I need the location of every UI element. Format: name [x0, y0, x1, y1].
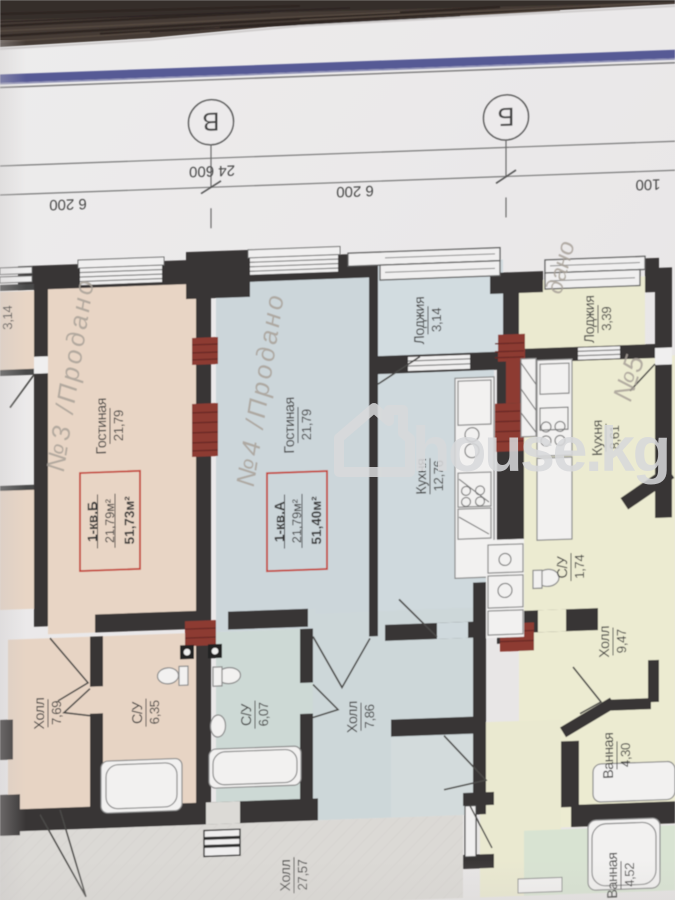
svg-text:6,07: 6,07	[256, 702, 271, 727]
svg-text:С/У: С/У	[555, 555, 571, 579]
svg-text:Гостиная: Гостиная	[94, 398, 110, 455]
svg-text:1,74: 1,74	[572, 554, 587, 579]
svg-text:3,39: 3,39	[599, 306, 614, 331]
svg-text:7,69: 7,69	[49, 701, 64, 726]
svg-text:Ванная: Ванная	[601, 732, 617, 779]
svg-text:9,47: 9,47	[614, 629, 629, 654]
svg-text:6 200: 6 200	[336, 182, 374, 200]
svg-text:С/У: С/У	[130, 700, 146, 724]
svg-text:С/У: С/У	[239, 702, 255, 726]
svg-text:51,40м²: 51,40м²	[309, 495, 324, 544]
svg-text:6,35: 6,35	[147, 700, 162, 725]
svg-text:21,79: 21,79	[299, 409, 314, 441]
svg-text:Б: Б	[497, 102, 514, 133]
svg-text:Холл: Холл	[32, 697, 48, 730]
svg-text:В: В	[202, 106, 219, 137]
svg-text:Холл: Холл	[345, 701, 361, 734]
svg-text:51,73м²: 51,73м²	[122, 495, 137, 544]
svg-text:Холл: Холл	[597, 625, 613, 658]
svg-text:Гостиная: Гостиная	[282, 397, 298, 454]
svg-text:3,14: 3,14	[429, 308, 444, 333]
svg-text:7,86: 7,86	[362, 704, 377, 729]
svg-text:Лоджия: Лоджия	[412, 296, 428, 344]
svg-text:100: 100	[635, 175, 660, 193]
svg-text:21,79: 21,79	[111, 410, 126, 442]
svg-text:Лоджия: Лоджия	[582, 295, 598, 343]
svg-text:4,30: 4,30	[618, 743, 633, 768]
svg-text:24 600: 24 600	[189, 161, 235, 180]
svg-text:house.kg: house.kg	[412, 415, 669, 485]
svg-text:6 200: 6 200	[49, 195, 87, 213]
